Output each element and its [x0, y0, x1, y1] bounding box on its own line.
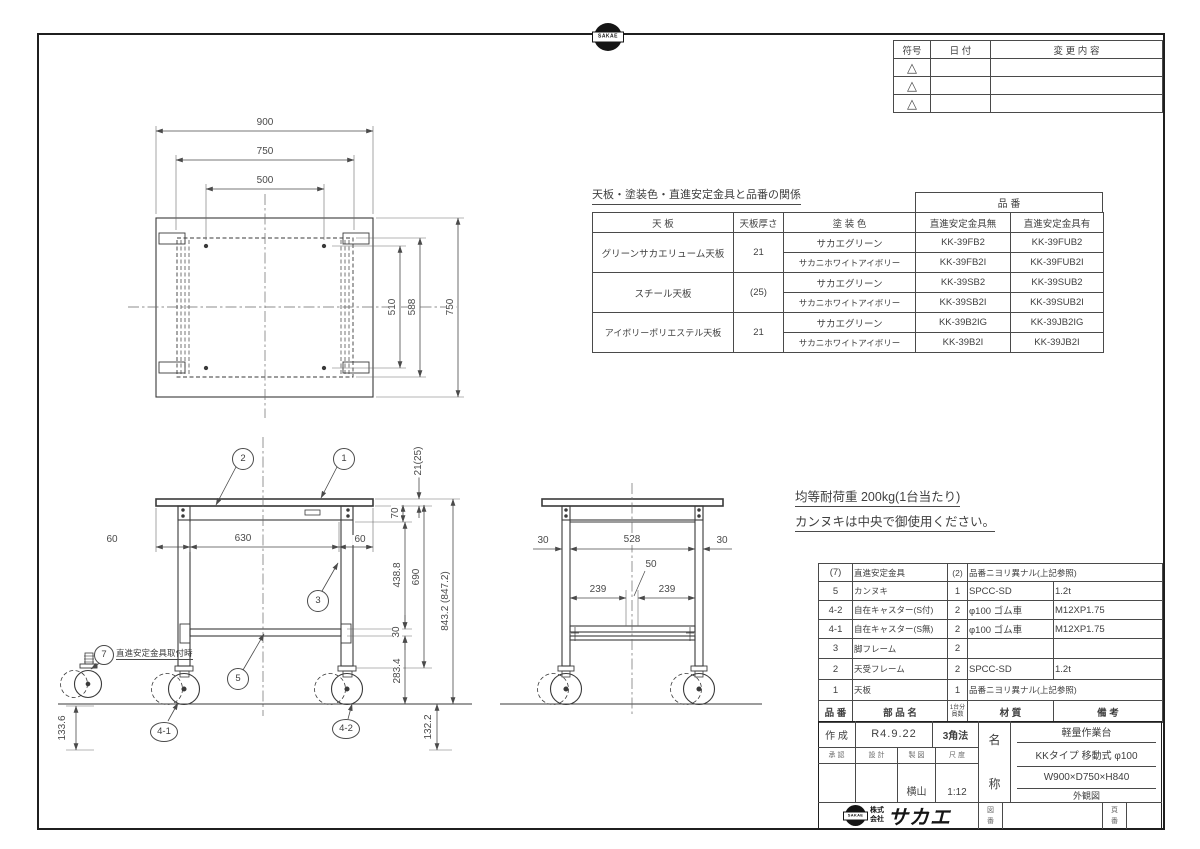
dim-510: 510: [388, 297, 398, 318]
company-name: サカエ: [888, 801, 951, 830]
balloon-2: 2: [232, 448, 254, 470]
side-view-dimension-lines: [533, 549, 732, 626]
draft-label: 製 図: [898, 747, 935, 763]
revision-header-symbol: 符号: [894, 41, 931, 59]
dim-690: 690: [412, 567, 422, 588]
dim-60-left: 60: [104, 535, 119, 545]
dim-132-2: 132.2: [424, 712, 434, 741]
approve-label: 承 認: [818, 747, 855, 763]
part-no: 5: [819, 582, 853, 601]
product-table-title: 天板・塗装色・直進安定金具と品番の関係: [592, 186, 801, 205]
design-value: [856, 763, 897, 802]
product-code: KK-39B2I: [916, 333, 1011, 353]
parts-header-name: 部 品 名: [853, 701, 948, 723]
product-header-with: 直進安定金具有: [1011, 213, 1104, 233]
revision-triangle-icon: △: [907, 60, 917, 75]
dim-133-6: 133.6: [58, 713, 68, 742]
part-name: 自在キャスター(S付): [853, 601, 948, 620]
note-stabilizer-mounted: 直進安定金具取付時: [116, 647, 193, 660]
revision-triangle-icon: △: [907, 96, 917, 111]
dim-283-4: 283.4: [393, 656, 403, 685]
balloon-5: 5: [227, 668, 249, 690]
product-name-area: 軽量作業台 KKタイプ 移動式 φ100 W900×D750×H840 外観図: [1011, 721, 1162, 802]
product-thickness: 21: [734, 233, 784, 273]
part-no: 4-2: [819, 601, 853, 620]
product-color: サカニホワイトアイボリー: [784, 253, 916, 273]
dim-top-thickness: 21(25): [414, 445, 424, 478]
product-code: KK-39SUB2I: [1011, 293, 1104, 313]
revision-change-cell: [991, 59, 1163, 77]
part-material: 品番ニヨリ異ナル(上記参照): [968, 680, 1163, 701]
part-material: φ100 ゴム車: [968, 601, 1054, 620]
revision-date-cell: [931, 95, 991, 113]
drawing-no-label: 図番: [979, 802, 1002, 829]
dim-750-width: 750: [255, 147, 276, 157]
product-code: KK-39SUB2: [1011, 273, 1104, 293]
product-header-top: 天 板: [593, 213, 734, 233]
balloon-4-1: 4-1: [150, 722, 178, 742]
company-logo: SAKAE 株式 会社 サカエ: [818, 802, 978, 829]
product-code: KK-39SB2I: [916, 293, 1011, 313]
part-material: SPCC-SD: [968, 659, 1054, 680]
page-no-value: [1127, 802, 1162, 829]
product-code: KK-39FUB2: [1011, 233, 1104, 253]
dim-239-right: 239: [657, 585, 678, 595]
name-column-label: 名称: [979, 721, 1010, 802]
product-thickness: 21: [734, 313, 784, 353]
part-qty: 2: [948, 601, 968, 620]
product-name-line-1: 軽量作業台: [1017, 721, 1156, 743]
stamp-label: SAKAE: [598, 35, 618, 40]
page-no-label: 頁番: [1103, 802, 1126, 829]
part-remarks: M12XP1.75: [1054, 601, 1163, 620]
dim-50: 50: [643, 560, 658, 570]
balloon-7: 7: [94, 645, 114, 665]
product-color: サカエグリーン: [784, 313, 916, 333]
product-thickness: (25): [734, 273, 784, 313]
product-header-thickness: 天板厚さ: [734, 213, 784, 233]
product-color: サカエグリーン: [784, 233, 916, 253]
dim-630: 630: [233, 534, 254, 544]
part-material: SPCC-SD: [968, 582, 1054, 601]
parts-header-remarks: 備 考: [1054, 701, 1163, 723]
product-code: KK-39JB2I: [1011, 333, 1104, 353]
dim-30-right: 30: [714, 536, 729, 546]
product-code: KK-39FUB2I: [1011, 253, 1104, 273]
dim-239-left: 239: [588, 585, 609, 595]
scale-label: 尺 度: [936, 747, 978, 763]
dim-750-depth: 750: [446, 297, 456, 318]
side-view-linework: [500, 483, 762, 714]
dim-900: 900: [255, 118, 276, 128]
dim-70: 70: [391, 505, 401, 520]
product-top-name: スチール天板: [593, 273, 734, 313]
part-remarks: [1054, 639, 1163, 659]
company-prefix-2: 会社: [870, 816, 884, 824]
part-remarks: 1.2t: [1054, 659, 1163, 680]
top-view-dimension-lines: [156, 131, 458, 397]
part-qty: 2: [948, 639, 968, 659]
sakae-emblem-icon: SAKAE: [845, 805, 866, 826]
part-remarks: M12XP1.75: [1054, 620, 1163, 639]
company-prefix-1: 株式: [870, 807, 884, 815]
top-view-extension-lines: [156, 126, 464, 397]
note-kannuki: カンヌキは中央で御使用ください。: [795, 511, 995, 532]
part-material: 品番ニヨリ異ナル(上記参照): [968, 564, 1163, 582]
product-top-name: アイボリーポリエステル天板: [593, 313, 734, 353]
part-name: 直進安定金具: [853, 564, 948, 582]
balloon-1: 1: [333, 448, 355, 470]
product-color: サカエグリーン: [784, 273, 916, 293]
product-color: サカニホワイトアイボリー: [784, 333, 916, 353]
product-code: KK-39FB2: [916, 233, 1011, 253]
part-no: 1: [819, 680, 853, 701]
part-name: 天受フレーム: [853, 659, 948, 680]
created-label: 作 成: [818, 721, 855, 747]
dim-528: 528: [622, 535, 643, 545]
approve-value: [818, 763, 855, 802]
part-number-group-header: 品 番: [915, 192, 1103, 212]
revision-change-cell: [991, 77, 1163, 95]
note-load-capacity: 均等耐荷重 200kg(1台当たり): [795, 486, 960, 507]
revision-header-change: 変 更 内 容: [991, 41, 1163, 59]
part-qty: 2: [948, 620, 968, 639]
created-date: R4.9.22: [856, 721, 932, 747]
product-color: サカニホワイトアイボリー: [784, 293, 916, 313]
part-name: カンヌキ: [853, 582, 948, 601]
part-no: (7): [819, 564, 853, 582]
parts-header-no: 品 番: [819, 701, 853, 723]
part-qty: 1: [948, 582, 968, 601]
dim-30-left: 30: [535, 536, 550, 546]
revision-triangle-icon: △: [907, 78, 917, 93]
part-name: 天板: [853, 680, 948, 701]
front-view-linework: [58, 437, 472, 716]
balloon-4-2: 4-2: [332, 719, 360, 739]
revision-date-cell: [931, 77, 991, 95]
parts-header-material: 材 質: [968, 701, 1054, 723]
design-label: 設 計: [856, 747, 897, 763]
part-qty: (2): [948, 564, 968, 582]
part-qty: 2: [948, 659, 968, 680]
balloon-3: 3: [307, 590, 329, 612]
product-code: KK-39JB2IG: [1011, 313, 1104, 333]
drawing-sheet: SAKAE 符号 日 付 変 更 内 容 △ △ △ 天板・塗装色・直進安定金具…: [0, 0, 1200, 849]
part-no: 4-1: [819, 620, 853, 639]
revision-table: 符号 日 付 変 更 内 容 △ △ △: [893, 40, 1163, 113]
product-header-color: 塗 装 色: [784, 213, 916, 233]
product-top-name: グリーンサカエリューム天板: [593, 233, 734, 273]
dim-30: 30: [392, 624, 402, 639]
product-header-without: 直進安定金具無: [916, 213, 1011, 233]
sakae-stamp-icon: SAKAE: [594, 23, 622, 51]
revision-change-cell: [991, 95, 1163, 113]
drawing-no-value: [1003, 802, 1102, 829]
part-remarks: 1.2t: [1054, 582, 1163, 601]
parts-table: (7) 直進安定金具 (2) 品番ニヨリ異ナル(上記参照) 5 カンヌキ 1 S…: [818, 563, 1163, 723]
part-no: 3: [819, 639, 853, 659]
dim-60-right: 60: [352, 535, 367, 545]
product-table: 天 板 天板厚さ 塗 装 色 直進安定金具無 直進安定金具有 グリーンサカエリュ…: [592, 212, 1104, 353]
projection-method: 3角法: [933, 721, 978, 747]
part-no: 2: [819, 659, 853, 680]
product-code: KK-39SB2: [916, 273, 1011, 293]
product-name-line-2: KKタイプ 移動式 φ100: [1017, 743, 1156, 766]
scale-value: 1:12: [936, 763, 978, 802]
part-name: 自在キャスター(S無): [853, 620, 948, 639]
product-code: KK-39FB2I: [916, 253, 1011, 273]
revision-date-cell: [931, 59, 991, 77]
product-code: KK-39B2IG: [916, 313, 1011, 333]
parts-header-qty: 1台分 員数: [948, 701, 968, 723]
part-name: 脚フレーム: [853, 639, 948, 659]
product-name-line-4: 外観図: [1011, 789, 1162, 802]
part-qty: 1: [948, 680, 968, 701]
part-material: φ100 ゴム車: [968, 620, 1054, 639]
dim-500: 500: [255, 176, 276, 186]
dim-438-8: 438.8: [393, 560, 403, 589]
product-name-line-3: W900×D750×H840: [1017, 767, 1156, 789]
dim-843-2-total: 843.2 (847.2): [441, 569, 451, 633]
part-material: [968, 639, 1054, 659]
draft-value: 横山: [898, 763, 935, 802]
dim-588: 588: [408, 297, 418, 318]
revision-header-date: 日 付: [931, 41, 991, 59]
